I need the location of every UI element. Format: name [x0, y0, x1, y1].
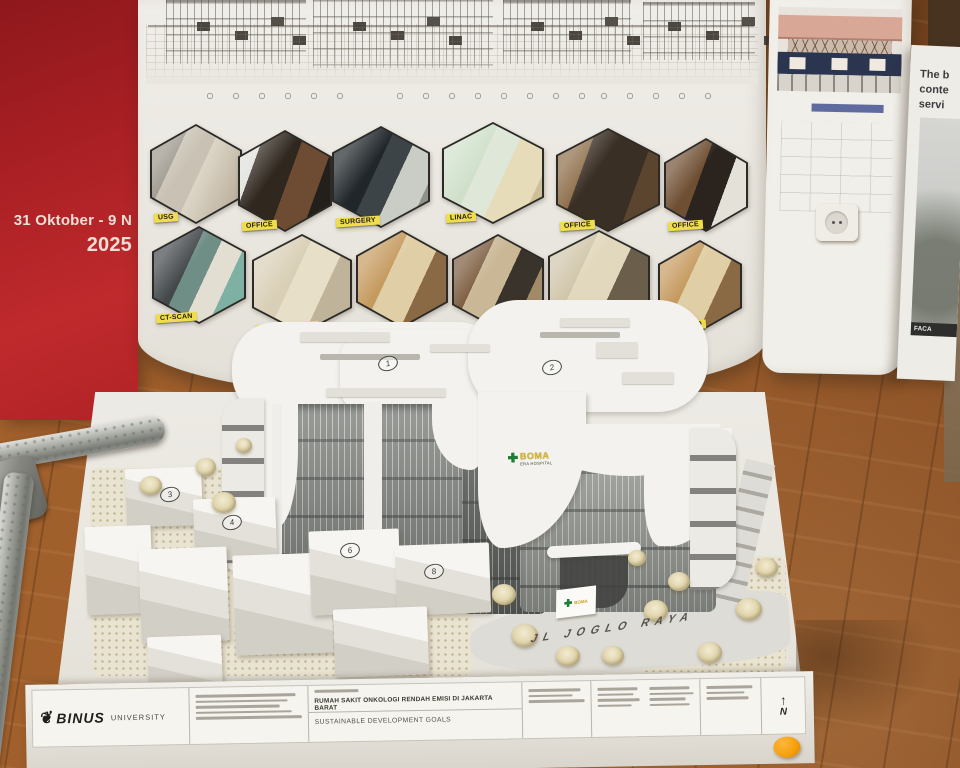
- roof-detail: [300, 332, 390, 342]
- paragraph-line: The b: [920, 67, 950, 83]
- roof-detail: [430, 344, 490, 352]
- event-date-range: 31 Oktober - 9 N: [14, 212, 132, 231]
- model-tree: [236, 438, 252, 453]
- context-block: [333, 606, 429, 677]
- model-tree: [668, 572, 690, 591]
- power-socket: [816, 204, 858, 241]
- render-window: [831, 58, 847, 70]
- paragraph-line: servi: [918, 97, 948, 113]
- side-poster-section-render: [762, 0, 912, 375]
- entrance-sign-name: BOMA: [574, 598, 588, 605]
- university-suffix: UNIVERSITY: [111, 712, 166, 722]
- hex-interior: [358, 232, 446, 326]
- info-line: [195, 710, 291, 714]
- model-tree: [756, 558, 778, 577]
- entrance-sign: BOMA: [556, 585, 596, 618]
- info-line: [598, 687, 638, 690]
- hex-interior: [334, 128, 428, 226]
- hospital-cross-icon: [508, 452, 518, 462]
- building-sign: BOMA ERA HOSPITAL: [508, 451, 553, 467]
- hex-interior: [240, 132, 330, 230]
- hex-interior: [666, 140, 746, 230]
- room-render-office: OFFICE: [664, 138, 748, 232]
- roof-detail: [622, 372, 674, 384]
- info-line: [650, 703, 690, 706]
- pedestal-front: ❦ BINUS UNIVERSITY RUMAH SAKIT ONKOLOGI …: [25, 671, 814, 768]
- facade-photo: FACA: [911, 117, 960, 337]
- info-line: [314, 689, 358, 692]
- hex-interior: [152, 126, 240, 222]
- info-line: [196, 715, 302, 719]
- roof-detail: [596, 342, 638, 358]
- hex-interior: [254, 236, 350, 332]
- basement-hatch: [146, 24, 758, 84]
- room-label: LINAC: [446, 212, 477, 223]
- model-tree: [140, 476, 162, 495]
- info-line: [529, 694, 573, 697]
- drawing-title-block: ❦ BINUS UNIVERSITY RUMAH SAKIT ONKOLOGI …: [31, 676, 806, 747]
- north-label: N: [780, 707, 787, 718]
- model-tree: [196, 458, 216, 476]
- info-line: [195, 693, 295, 697]
- event-dates: 31 Oktober - 9 N 2025: [14, 212, 132, 258]
- room-render-ctscan: CT-SCAN: [152, 226, 246, 324]
- roof-skylight: [540, 332, 620, 338]
- hex-interior: [444, 124, 542, 222]
- render-window: [789, 57, 805, 69]
- marker-number: 6: [347, 546, 353, 556]
- roof-detail: [560, 318, 630, 327]
- model-tree: [492, 584, 516, 605]
- room-render-office: OFFICE: [238, 130, 332, 232]
- legend-lines: [592, 679, 702, 737]
- event-banner: 31 Oktober - 9 N 2025: [0, 0, 138, 420]
- university-name: BINUS: [56, 710, 105, 727]
- render-interior-band: [777, 52, 901, 77]
- grid-bubbles: [396, 92, 596, 101]
- room-render-office: OFFICE: [556, 128, 660, 232]
- marker-number: 3: [167, 490, 173, 500]
- room-label: USG: [154, 212, 178, 223]
- model-tree: [556, 646, 580, 666]
- louver-tower-right: [690, 428, 736, 590]
- hex-interior: [154, 228, 244, 322]
- render-window: [869, 59, 885, 71]
- roof-skylight: [320, 354, 420, 360]
- university-logo: ❦ BINUS UNIVERSITY: [32, 688, 190, 747]
- hex-interior: [558, 130, 658, 230]
- render-caption-bar: [811, 103, 883, 113]
- orange-dot-sticker: [773, 736, 800, 757]
- info-line: [707, 691, 745, 694]
- roof-detail: [326, 388, 446, 397]
- info-line: [529, 699, 585, 702]
- room-label: OFFICE: [668, 220, 703, 231]
- scale-lines: [701, 678, 763, 735]
- info-line: [598, 698, 640, 701]
- room-render-linac: LINAC: [442, 122, 544, 224]
- model-tree: [602, 646, 624, 665]
- room-render: [356, 230, 448, 328]
- hospital-cross-icon: [564, 598, 572, 607]
- event-year: 2025: [14, 233, 132, 258]
- model-tree: [698, 642, 722, 663]
- render-base: [777, 74, 901, 94]
- colored-section-render: [777, 7, 903, 94]
- grid-bubbles: [600, 92, 722, 101]
- info-line: [598, 704, 632, 707]
- info-line: [707, 696, 749, 699]
- facade-paragraph: The b conte servi: [918, 67, 949, 113]
- ground-line: [148, 25, 754, 27]
- context-block: [309, 528, 402, 615]
- faint-plan-drawing: [779, 121, 893, 213]
- exhibition-photo: 31 Oktober - 9 N 2025 USG OFFICE SURGERY…: [0, 0, 960, 768]
- room-render-patient-ward: PATIENT WARD: [252, 234, 352, 334]
- approval-lines: [523, 681, 593, 738]
- grid-bubbles: [206, 92, 348, 101]
- room-label: OFFICE: [242, 220, 277, 231]
- north-indicator: ↑ N: [762, 677, 806, 734]
- room-render-usg: USG: [150, 124, 242, 224]
- facade-caption: FACA: [911, 322, 958, 337]
- legend-col: [598, 684, 641, 733]
- room-label: CT-SCAN: [156, 312, 197, 324]
- legend-col: [650, 683, 695, 732]
- info-line: [195, 699, 287, 703]
- project-subtitle: SUSTAINABLE DEVELOPMENT GOALS: [315, 715, 517, 726]
- paragraph-line: conte: [919, 82, 949, 98]
- info-line: [707, 685, 753, 688]
- room-render-surgery: SURGERY: [332, 126, 430, 228]
- info-line: [195, 704, 279, 708]
- binus-swirl-icon: ❦: [37, 707, 55, 730]
- render-upper-band: [778, 15, 902, 42]
- project-title-cell: RUMAH SAKIT ONKOLOGI RENDAH EMISI DI JAK…: [308, 682, 524, 742]
- building-sign-text: BOMA ERA HOSPITAL: [520, 451, 553, 466]
- model-tree: [628, 550, 646, 566]
- model-tree: [212, 492, 236, 513]
- room-label: SURGERY: [336, 215, 380, 227]
- marker-number: 1: [385, 359, 391, 369]
- info-line: [529, 688, 581, 691]
- context-block: [138, 546, 229, 643]
- context-block: [395, 542, 491, 615]
- marker-number: 2: [549, 363, 555, 373]
- info-line: [650, 692, 694, 695]
- info-line: [650, 697, 686, 700]
- north-arrow-icon: ↑: [780, 694, 787, 707]
- info-line: [598, 693, 634, 696]
- pedestal-floor-shadow: [796, 620, 946, 740]
- marker-number: 8: [431, 567, 437, 577]
- info-line: [650, 686, 690, 689]
- marker-number: 4: [229, 518, 235, 528]
- student-info-lines: [189, 686, 309, 744]
